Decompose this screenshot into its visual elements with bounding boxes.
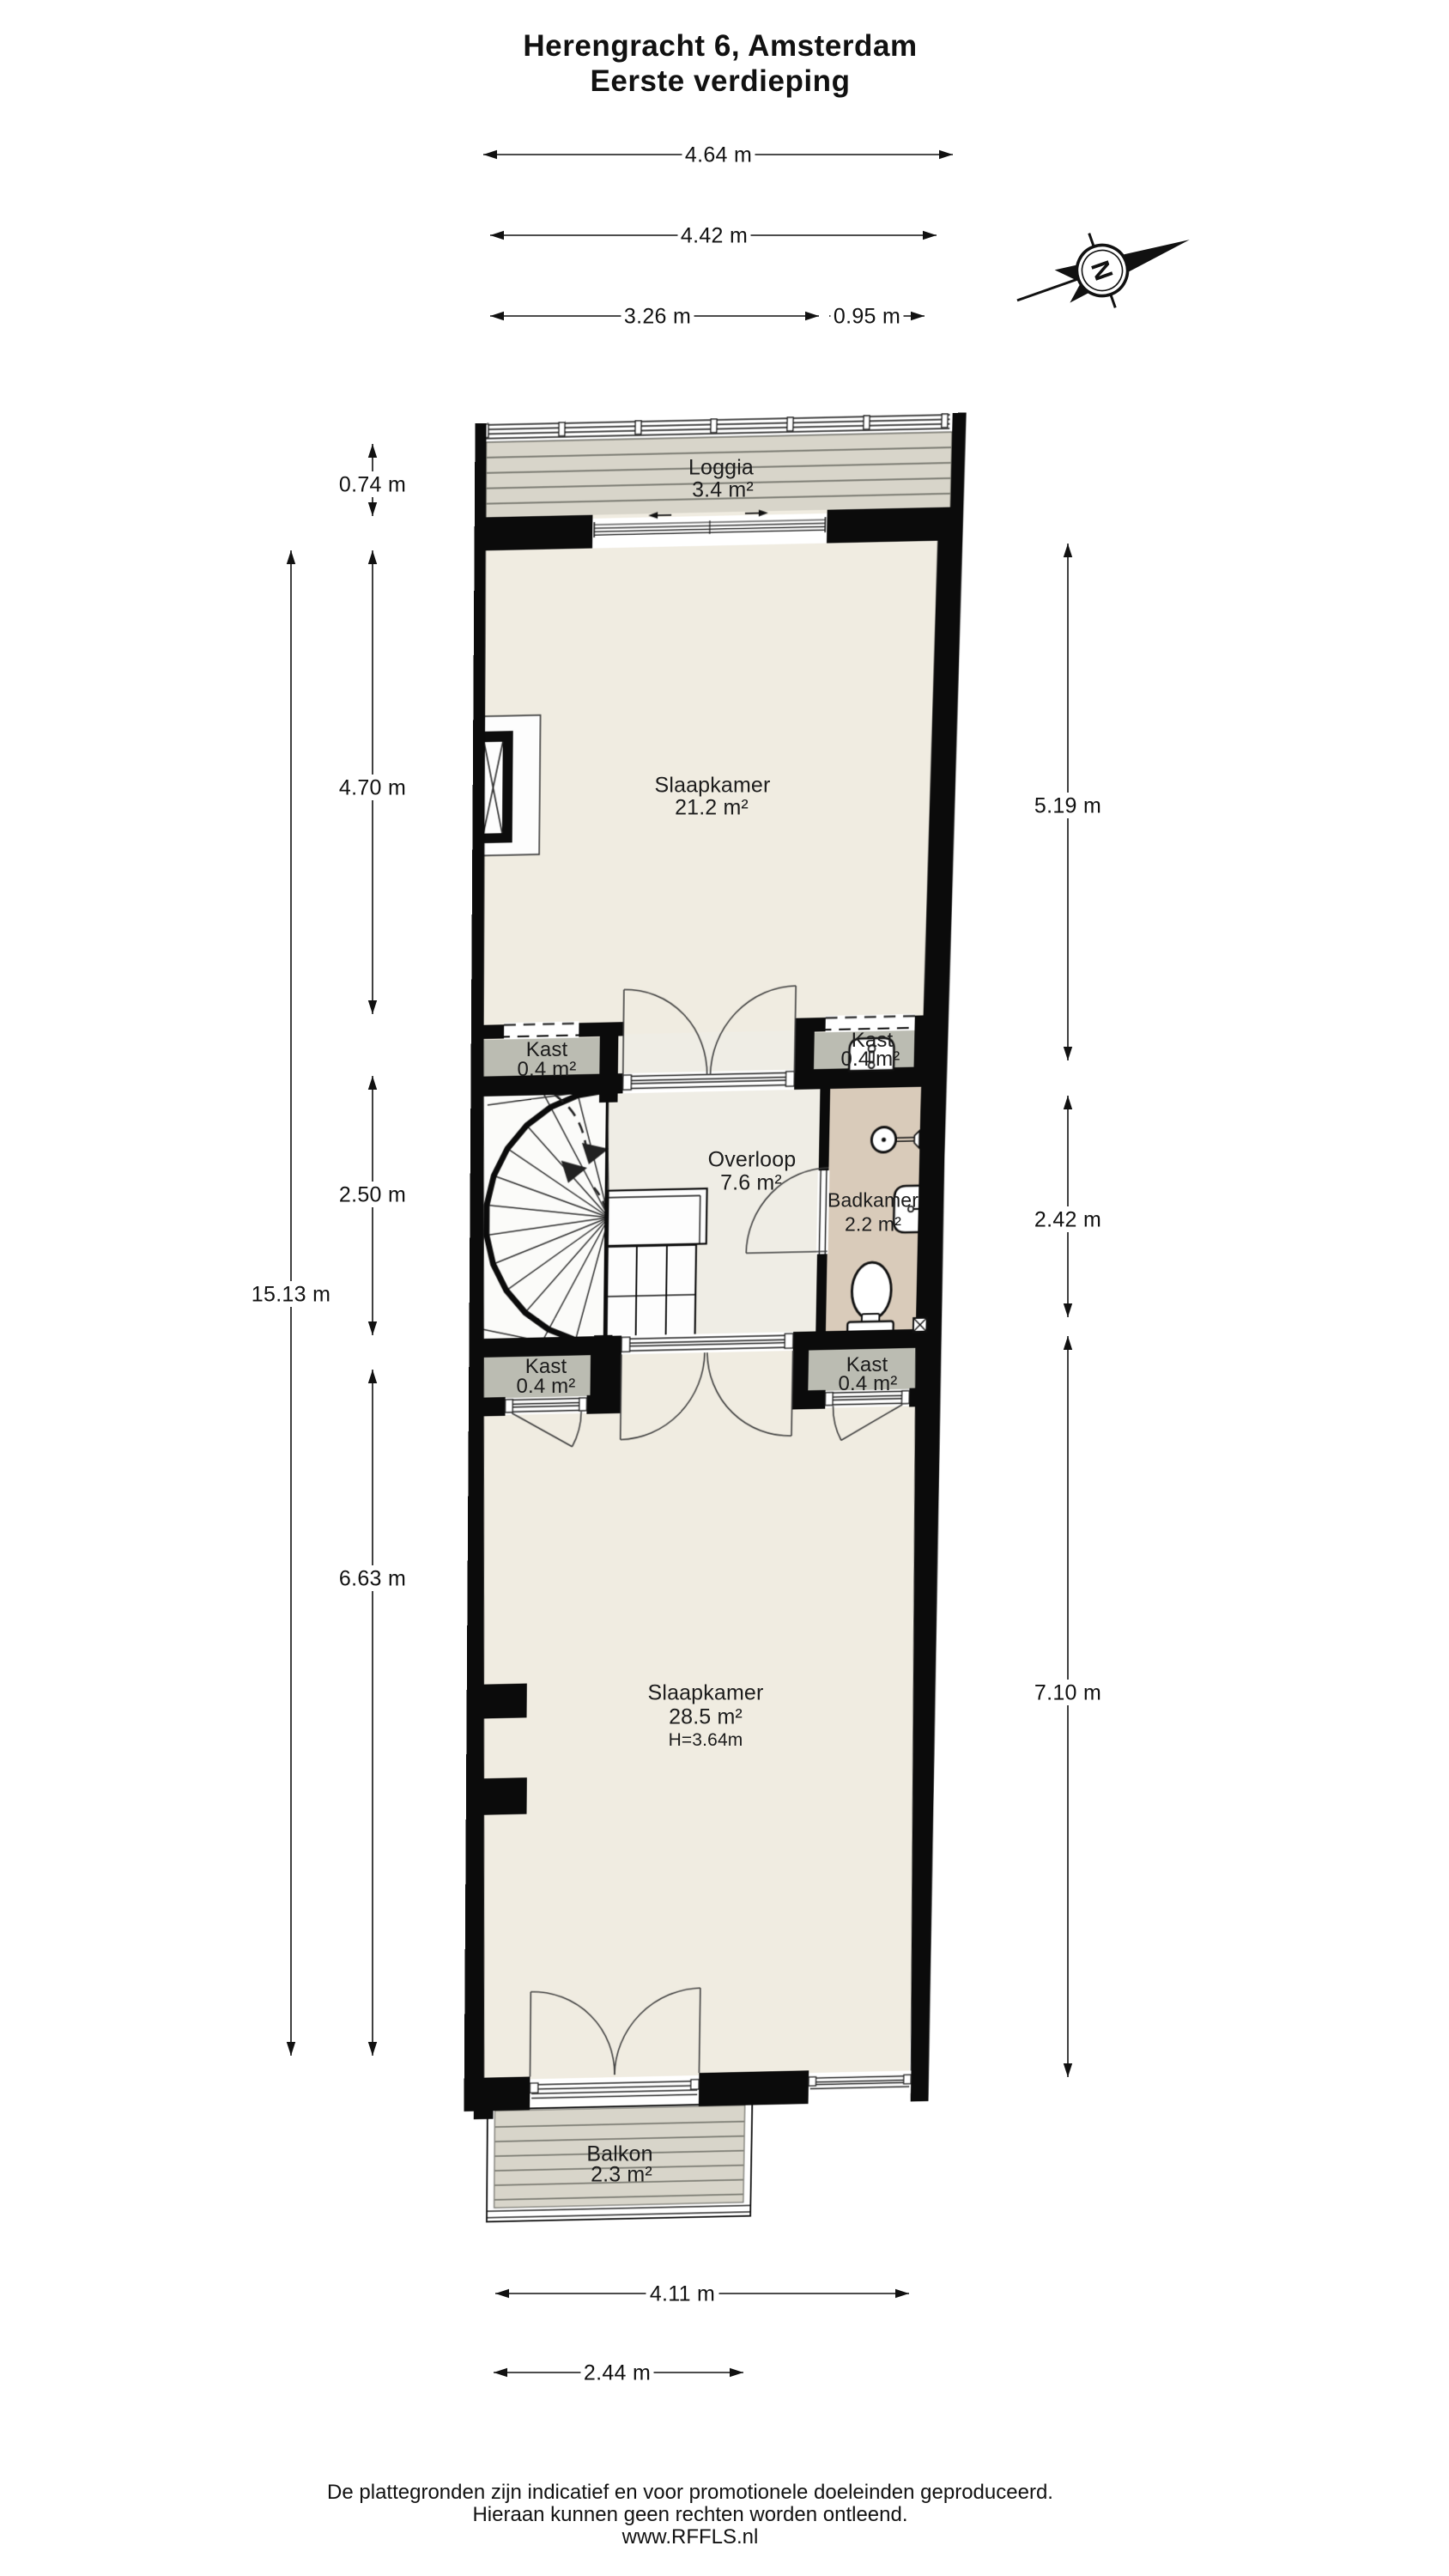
- svg-text:4.11 m: 4.11 m: [650, 2282, 715, 2306]
- svg-text:0.74 m: 0.74 m: [339, 473, 406, 497]
- svg-text:2.42 m: 2.42 m: [1034, 1208, 1101, 1232]
- svg-text:4.64 m: 4.64 m: [685, 143, 752, 167]
- svg-text:0.95 m: 0.95 m: [834, 305, 900, 329]
- svg-text:4.42 m: 4.42 m: [681, 224, 748, 248]
- svg-text:7.10 m: 7.10 m: [1034, 1681, 1101, 1705]
- svg-text:4.70 m: 4.70 m: [339, 776, 406, 800]
- svg-text:15.13 m: 15.13 m: [252, 1283, 330, 1307]
- svg-text:2.44 m: 2.44 m: [584, 2361, 651, 2385]
- svg-text:5.19 m: 5.19 m: [1034, 794, 1101, 818]
- svg-text:3.26 m: 3.26 m: [624, 305, 691, 329]
- svg-text:6.63 m: 6.63 m: [339, 1567, 406, 1591]
- svg-text:2.50 m: 2.50 m: [339, 1183, 406, 1207]
